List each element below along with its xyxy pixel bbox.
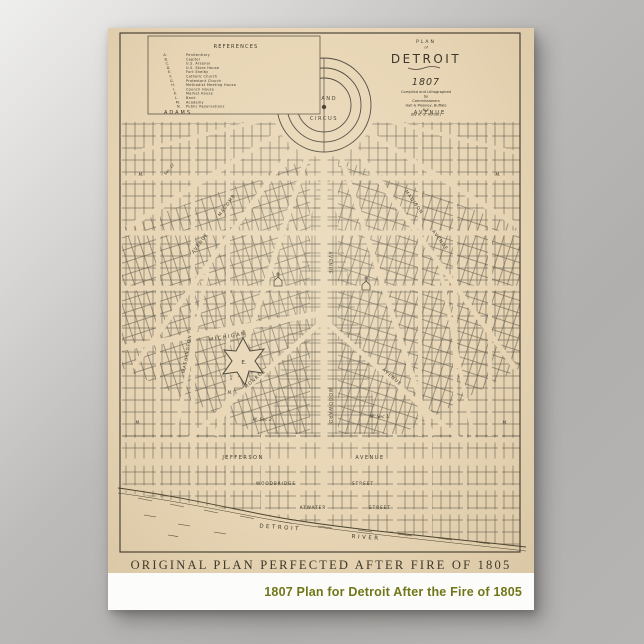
section-label-sec2: M. Sec 2. — [253, 417, 274, 423]
product-caption-band: 1807 Plan for Detroit After the Fire of … — [108, 573, 534, 610]
legend-entry: Public Reservations — [186, 105, 225, 109]
poster-caption: ORIGINAL PLAN PERFECTED AFTER FIRE OF 18… — [131, 558, 512, 572]
section-label-sec1: M. Sec 1. — [370, 414, 391, 420]
credit-line: Hall & Mooney, Buffalo — [405, 104, 446, 108]
map-title-block: PLAN of DETROIT 1807 Compiled and Lithog… — [391, 39, 461, 117]
product-photo-background: GRAND CIRCUS E. — [0, 0, 644, 644]
street-label-adams: ADAMS — [164, 110, 192, 116]
legend-title: REFERENCES — [214, 44, 259, 50]
reservation-mark: M. — [503, 420, 508, 425]
reservation-mark: M. — [136, 420, 141, 425]
street-label-jefferson-av: AVENUE — [355, 455, 384, 461]
fort-letter: E. — [241, 360, 246, 366]
map-title-year: 1807 — [412, 77, 440, 88]
map-title-of: of — [424, 46, 428, 50]
credit-line: Commissioners — [412, 99, 440, 103]
map-print: GRAND CIRCUS E. — [108, 28, 534, 573]
street-label-woodbridge: WOODBRIDGE — [256, 481, 296, 486]
street-label-atwater: ATWATER — [300, 505, 327, 510]
legend-box: REFERENCES A. B. C. D. E. F. G. H. I. K.… — [148, 36, 320, 114]
street-label-woodward: WOODWARD — [327, 388, 333, 425]
street-label-atwater-st: STREET — [369, 505, 391, 510]
detroit-1807-map: GRAND CIRCUS E. — [108, 28, 534, 573]
credit-line: Compiled and Lithographed — [401, 90, 451, 94]
river-label-river: RIVER — [351, 534, 380, 542]
map-title-plan: PLAN — [416, 39, 436, 45]
legend-letter: N. — [177, 105, 181, 109]
map-title-name: DETROIT — [391, 52, 461, 66]
reservation-mark: M. — [228, 390, 233, 395]
reservation-mark: M. — [496, 172, 501, 177]
street-label-woodward-av: AVENUE — [328, 252, 333, 275]
product-caption: 1807 Plan for Detroit After the Fire of … — [264, 585, 522, 599]
street-label-adams-av: AVENUE — [414, 110, 446, 116]
circus-center-dot — [322, 105, 326, 109]
credit-line: by — [424, 95, 429, 99]
street-label-jefferson: JEFFERSON — [221, 455, 263, 461]
river-label-detroit: DETROIT — [259, 524, 301, 533]
poster: GRAND CIRCUS E. — [108, 28, 534, 610]
grand-circus-label-2: CIRCUS — [310, 116, 338, 122]
reservation-mark: M. — [139, 172, 144, 177]
street-label-woodbridge-st: STREET — [352, 481, 374, 486]
